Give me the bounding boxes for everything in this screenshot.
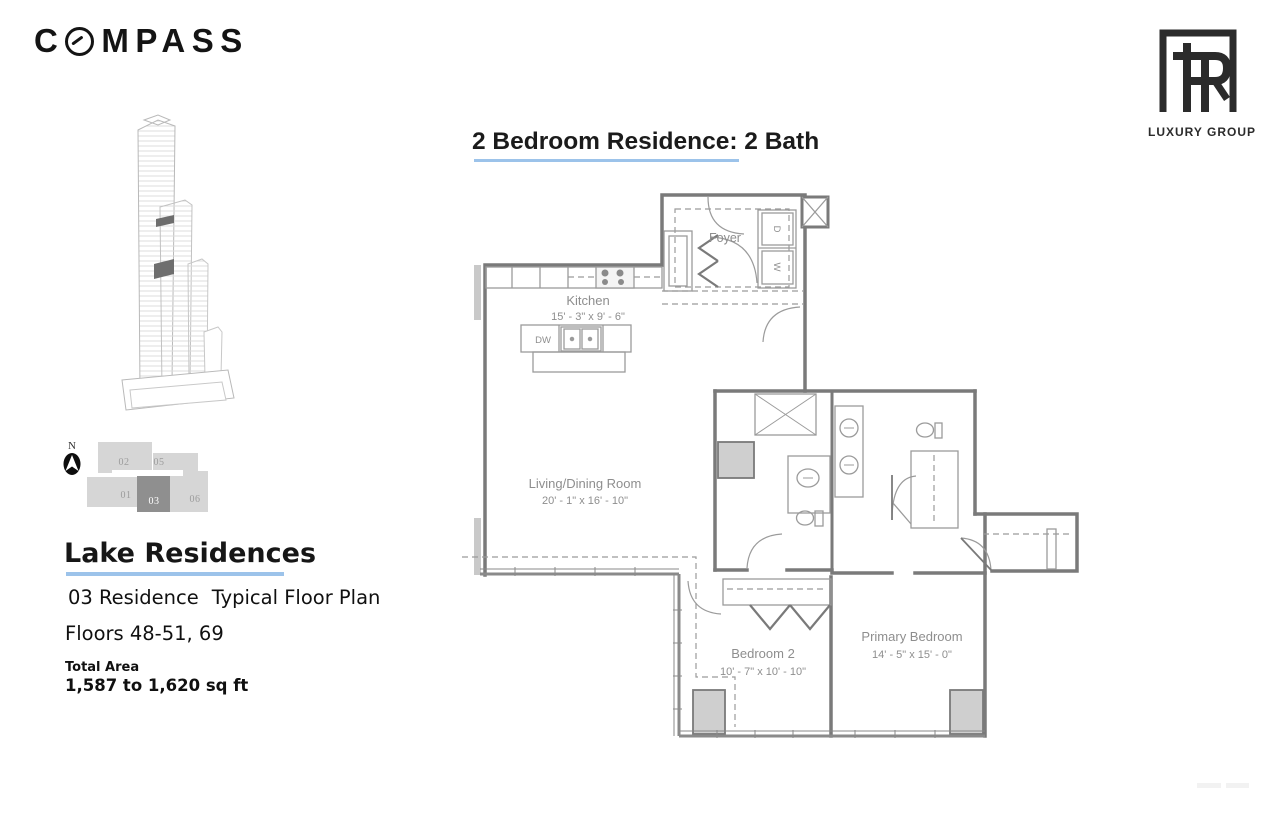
compass-logo: CMPASS bbox=[34, 22, 249, 60]
washer-label: W bbox=[771, 263, 782, 272]
closet-double-doors bbox=[750, 605, 830, 629]
living-dims: 20' - 1" x 16' - 10" bbox=[542, 495, 628, 507]
title-underline bbox=[474, 159, 739, 162]
key-plan-unit-06 bbox=[170, 471, 208, 512]
key-plan-corridor bbox=[112, 470, 183, 476]
key-plan: 02 05 01 03 06 bbox=[85, 438, 215, 518]
page-title: 2 Bedroom Residence: 2 Bath bbox=[472, 128, 819, 156]
dishwasher-label: DW bbox=[535, 335, 551, 346]
floor-plan-page: CMPASS LUXURY GROUP 2 Bedroom Residence:… bbox=[0, 0, 1280, 828]
vanity bbox=[788, 456, 830, 513]
kitchen-dims: 15' - 3" x 9' - 6" bbox=[551, 311, 625, 323]
primary-bath-fixtures bbox=[835, 406, 958, 528]
compass-logo-text-post: MPASS bbox=[101, 22, 248, 60]
building-name: Lake Residences bbox=[64, 538, 316, 569]
plan-type-label: Typical Floor Plan bbox=[212, 586, 381, 609]
kitchen-label: Kitchen bbox=[566, 293, 609, 308]
foyer-closet bbox=[664, 231, 692, 291]
north-label: N bbox=[62, 440, 82, 452]
building-illustration bbox=[100, 112, 250, 420]
laundry-closet bbox=[758, 210, 796, 288]
luxury-group-label: LUXURY GROUP bbox=[1148, 125, 1248, 139]
foyer-label: Foyer bbox=[709, 231, 741, 245]
cooktop bbox=[596, 267, 634, 288]
dryer-label: D bbox=[771, 226, 782, 233]
primary-dims: 14' - 5" x 15' - 0" bbox=[872, 649, 952, 661]
toilet bbox=[917, 423, 934, 437]
primary-label: Primary Bedroom bbox=[861, 629, 962, 644]
total-area-label: Total Area bbox=[65, 660, 139, 675]
total-area-value: 1,587 to 1,620 sq ft bbox=[65, 676, 248, 695]
bath-2-fixtures bbox=[755, 394, 830, 526]
residence-subtitle: 03 Residence Typical Floor Plan bbox=[68, 586, 380, 609]
luxury-monogram-icon bbox=[1156, 26, 1240, 112]
living-label: Living/Dining Room bbox=[529, 476, 642, 491]
key-plan-label-02: 02 bbox=[113, 457, 135, 468]
key-plan-label-03: 03 bbox=[143, 496, 165, 507]
bedroom2-closet bbox=[723, 579, 831, 605]
north-arrow-icon bbox=[62, 452, 82, 476]
north-arrow: N bbox=[62, 440, 82, 481]
residence-number-label: 03 Residence bbox=[68, 586, 199, 609]
key-plan-label-06: 06 bbox=[184, 494, 206, 505]
fixtures bbox=[486, 197, 1056, 605]
floors-label: Floors 48-51, 69 bbox=[65, 622, 224, 645]
key-plan-label-01: 01 bbox=[115, 490, 137, 501]
compass-logo-text-pre: C bbox=[34, 22, 64, 60]
floor-plan-drawing: Foyer Kitchen 15' - 3" x 9' - 6" Living/… bbox=[455, 185, 1095, 765]
bedroom2-label: Bedroom 2 bbox=[731, 646, 795, 661]
building-name-underline bbox=[66, 572, 284, 576]
luxury-group-logo: LUXURY GROUP bbox=[1148, 26, 1248, 139]
closet-shelf bbox=[1047, 529, 1056, 569]
key-plan-label-05: 05 bbox=[148, 457, 170, 468]
kitchen-island bbox=[521, 325, 631, 372]
watermark bbox=[1197, 783, 1249, 788]
bedroom2-dims: 10' - 7" x 10' - 10" bbox=[720, 666, 806, 678]
compass-o-mark-icon bbox=[65, 27, 94, 56]
